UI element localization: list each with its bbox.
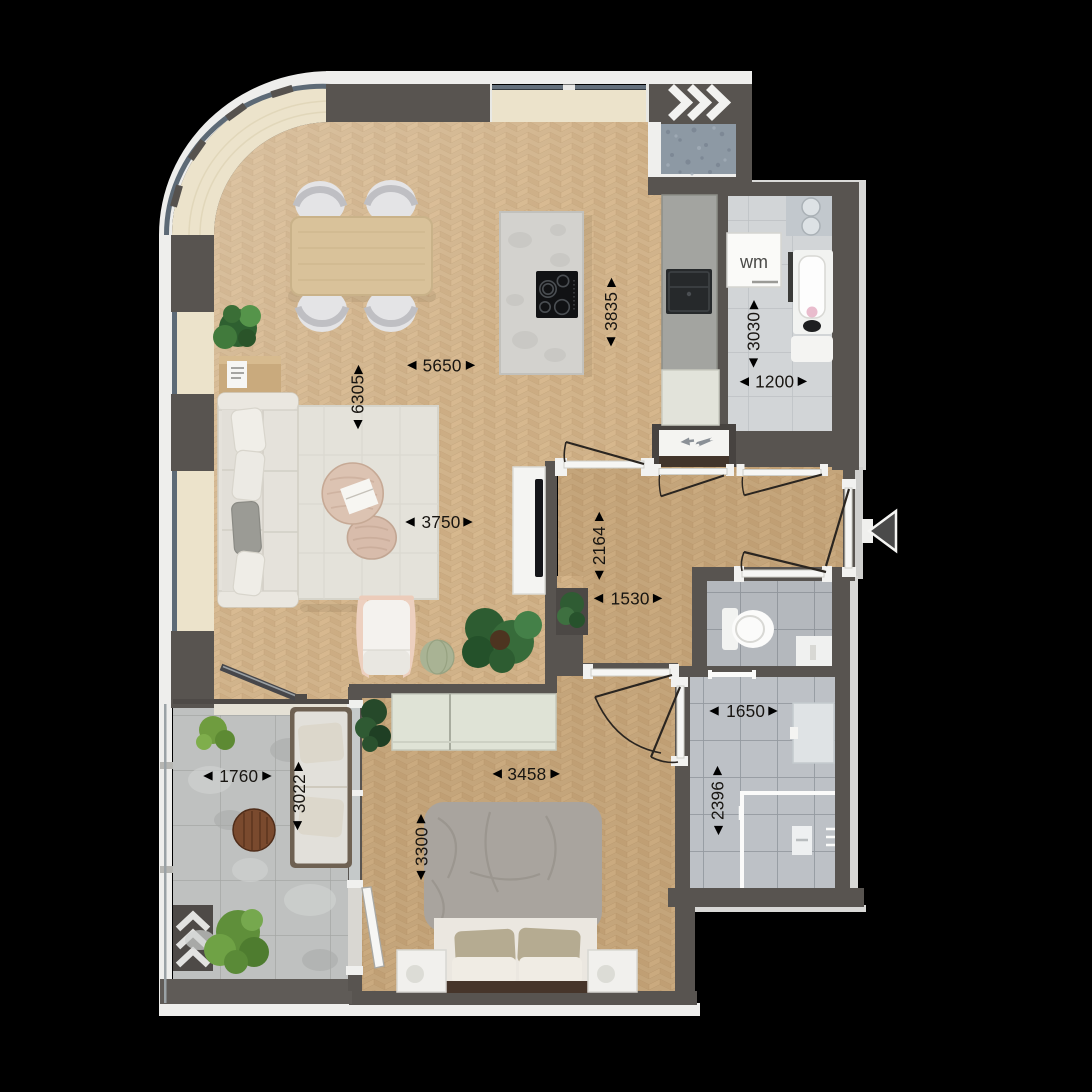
svg-text:2164: 2164 <box>589 526 609 565</box>
svg-text:2396: 2396 <box>708 781 728 820</box>
svg-text:wm: wm <box>739 252 768 272</box>
svg-text:6305: 6305 <box>348 375 368 414</box>
svg-text:3458: 3458 <box>507 764 546 784</box>
svg-text:3835: 3835 <box>601 292 621 331</box>
svg-text:1650: 1650 <box>726 701 765 721</box>
svg-text:1200: 1200 <box>755 371 794 391</box>
svg-text:5650: 5650 <box>423 356 462 376</box>
svg-text:3022: 3022 <box>289 774 309 813</box>
svg-text:1530: 1530 <box>611 589 650 609</box>
svg-text:3750: 3750 <box>421 512 460 532</box>
svg-text:3300: 3300 <box>412 827 432 866</box>
svg-text:3030: 3030 <box>744 312 764 351</box>
svg-text:1760: 1760 <box>219 766 258 786</box>
